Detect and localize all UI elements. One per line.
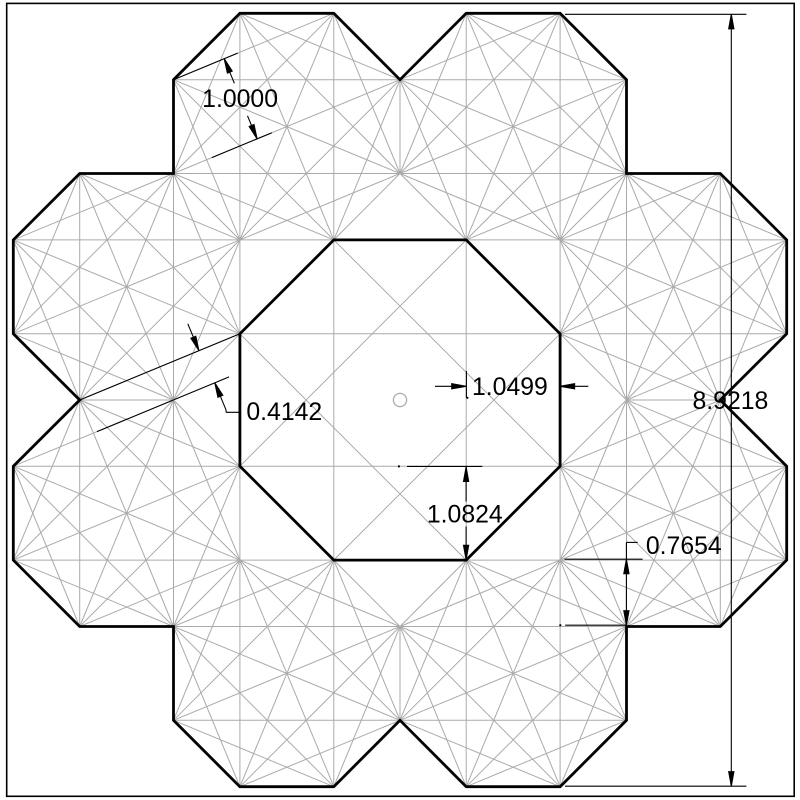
svg-text:1.0499: 1.0499 — [472, 374, 548, 401]
svg-text:1.0824: 1.0824 — [427, 501, 503, 528]
svg-text:8.9218: 8.9218 — [692, 388, 768, 415]
svg-text:1.0000: 1.0000 — [202, 86, 278, 113]
svg-text:0.4142: 0.4142 — [246, 399, 322, 426]
svg-text:0.7654: 0.7654 — [646, 533, 722, 560]
